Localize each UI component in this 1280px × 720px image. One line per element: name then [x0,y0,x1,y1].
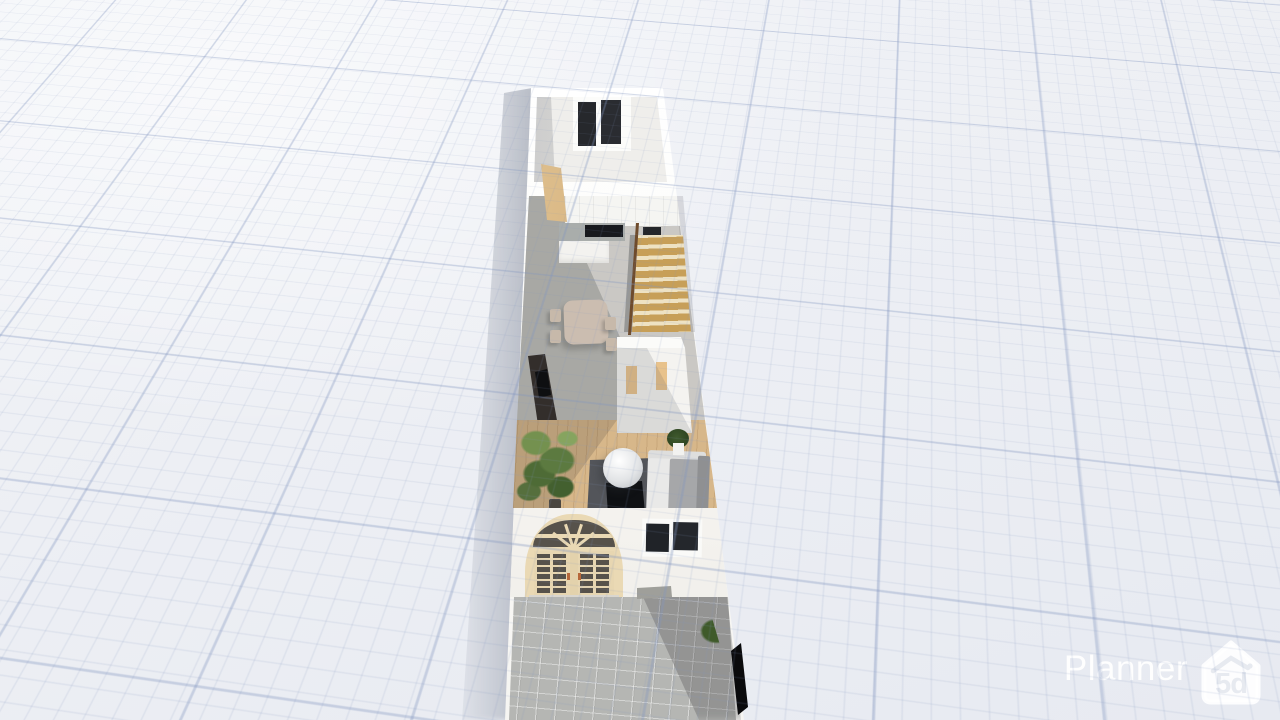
door-leaf-left [534,551,571,596]
logo-house-icon: 5d [1200,640,1262,706]
door-leaf-right [577,551,614,596]
logo-wordmark: Planner [1064,651,1188,696]
door-center-stile [570,551,578,596]
tree-pot [549,499,561,509]
sofa-plant-pot [673,443,684,455]
floorplan-3d-canvas[interactable] [495,85,765,720]
bedroom-window [573,97,631,151]
door-handle [578,573,581,580]
render-view: { "brand": { "name": "Planner", "badge":… [0,0,1280,720]
dining-chair [606,338,617,351]
bean-bag-pouf [603,448,643,488]
transom-bar [533,534,615,538]
facade-window [642,518,703,557]
dining-table [563,299,609,345]
cabinet-front [559,241,609,263]
window-pane [578,102,596,146]
window-pane [673,522,698,550]
cooktop [585,225,623,237]
dining-chair [550,330,561,343]
planner5d-watermark: Planner 5d [1064,640,1262,706]
window-pane [601,100,621,144]
potted-tree [515,421,585,509]
dining-chair [605,317,616,330]
window-pane [646,524,669,552]
french-doors [525,514,623,601]
door-handle [567,573,570,580]
logo-badge-text: 5d [1215,668,1247,700]
dining-chair [550,309,561,322]
